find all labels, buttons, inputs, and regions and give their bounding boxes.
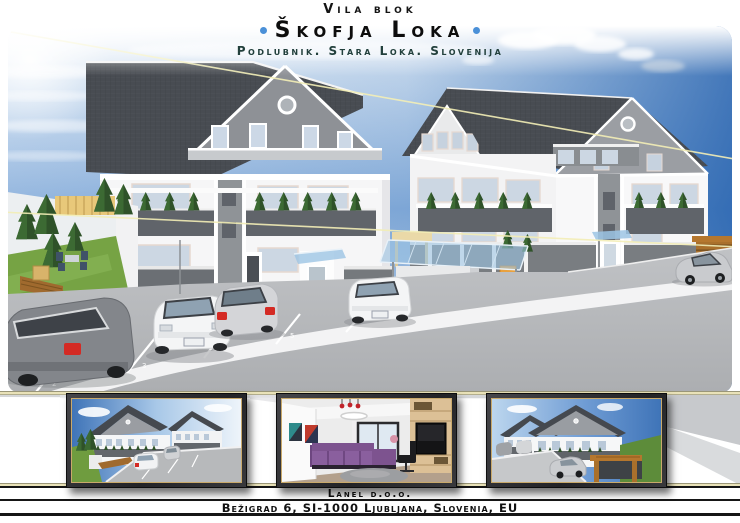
page-title: Škofja Loka <box>275 18 466 43</box>
parking-number: 3 <box>142 362 146 370</box>
pretitle: Vila blok <box>0 2 740 17</box>
subtitle-location: Podlubnik. Stara Loka. Slovenija <box>0 44 740 58</box>
tv-wall-unit <box>410 399 451 473</box>
round-gable-window-right <box>622 118 635 131</box>
pergola-mini <box>590 455 642 482</box>
footer-address: Bežigrad 6, SI-1000 Ljubljana, Slovenia,… <box>0 501 740 515</box>
thumbnail-exterior-front-image <box>71 398 242 483</box>
real-estate-poster: Vila blok Škofja Loka Podlubnik. Stara L… <box>0 0 740 523</box>
thumbnail-interior-living-room <box>276 393 457 488</box>
title-accent-dot-left-icon <box>260 27 267 34</box>
footer-company: Lanel d.o.o. <box>0 488 740 500</box>
header: Vila blok Škofja Loka Podlubnik. Stara L… <box>0 2 740 58</box>
silver-car-mini <box>550 457 586 479</box>
thumbnail-exterior-side-image <box>491 398 662 483</box>
thumbnail-exterior-side <box>486 393 667 488</box>
thumbnail-interior-image <box>281 398 452 483</box>
attic-balcony-rail <box>188 150 382 160</box>
parking-number: 5 <box>290 332 294 340</box>
title-accent-dot-right-icon <box>473 27 480 34</box>
ceiling-light <box>341 413 367 420</box>
car-4-white <box>344 277 416 328</box>
title-row: Škofja Loka <box>0 18 740 43</box>
main-render: 2 3 4 5 <box>8 26 732 392</box>
thumbnail-exterior-front <box>66 393 247 488</box>
car-1-dark-gray <box>8 298 136 388</box>
pink-plant <box>390 435 398 443</box>
round-gable-window-left <box>279 97 295 113</box>
